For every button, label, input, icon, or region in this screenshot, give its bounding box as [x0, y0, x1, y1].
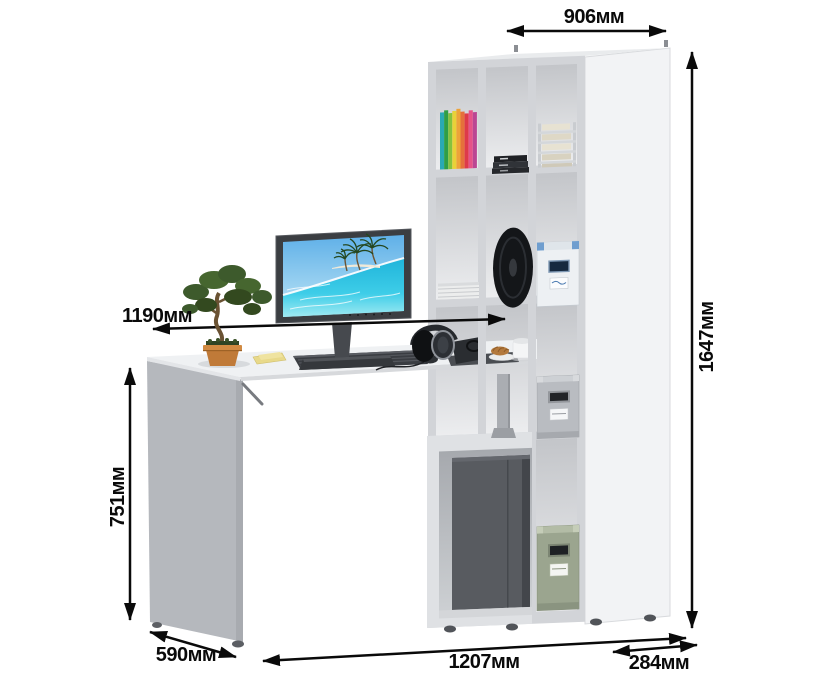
dim-label-top-width: 906мм — [564, 7, 624, 27]
dimension-arrow-bookcase-depth — [613, 645, 697, 652]
pc-cabinet — [427, 432, 532, 628]
dim-label-desk-height: 751мм — [108, 467, 128, 527]
desk-bracket — [243, 384, 262, 404]
desk-side-panel — [147, 361, 243, 642]
dim-label-desk-depth: 590мм — [156, 645, 216, 665]
black-books — [492, 155, 529, 174]
furniture-dimension-diagram: 906мм 1647мм 1190мм 751мм 590мм 1207мм 2… — [0, 0, 816, 700]
shelving-unit — [427, 40, 670, 633]
pc-tower — [452, 455, 530, 610]
dim-label-total-width: 1207мм — [448, 652, 519, 672]
croissant — [491, 347, 509, 356]
monitor-stand — [332, 322, 352, 358]
bookcase-side-panel — [585, 48, 670, 624]
rainbow-books — [440, 108, 477, 169]
magazine-stack — [438, 282, 479, 300]
connector-knob — [514, 45, 518, 52]
storage-box-gray — [537, 375, 579, 439]
storage-box-green — [537, 525, 579, 611]
dim-label-bookcase-depth: 284мм — [629, 653, 689, 673]
dim-label-desktop-width: 1190мм — [122, 306, 192, 326]
connector-knob — [664, 40, 668, 47]
furniture-scene — [0, 0, 816, 700]
dim-label-total-height: 1647мм — [697, 301, 717, 372]
storage-box-white-blue — [537, 241, 579, 307]
bonsai-foliage — [182, 265, 272, 315]
monitor-screen — [283, 234, 404, 317]
